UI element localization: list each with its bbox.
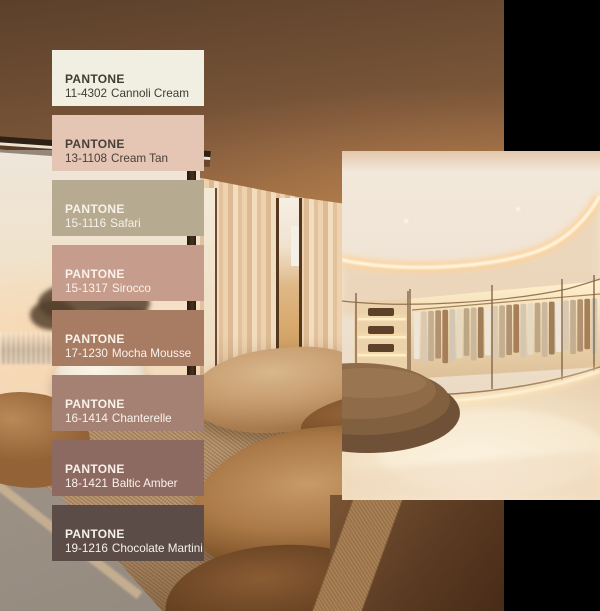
swatch-code: 19-1216 xyxy=(65,542,108,555)
pantone-swatch: PANTONE 17-1230Mocha Mousse xyxy=(52,310,204,366)
pantone-brand-label: PANTONE xyxy=(65,398,196,410)
swatch-code: 15-1317 xyxy=(65,282,108,295)
swatch-name: Cannoli Cream xyxy=(111,87,189,100)
pantone-swatch: PANTONE 19-1216Chocolate Martini xyxy=(52,505,204,561)
window-slice xyxy=(204,188,217,386)
swatch-name: Chocolate Martini xyxy=(112,542,203,555)
pantone-swatch: PANTONE 15-1116Safari xyxy=(52,180,204,236)
pantone-moodboard: PANTONE 11-4302Cannoli Cream PANTONE 13-… xyxy=(0,0,600,611)
swatch-code-name: 19-1216Chocolate Martini xyxy=(65,543,196,555)
pantone-brand-label: PANTONE xyxy=(65,268,196,280)
ceiling-spotlight xyxy=(404,219,408,223)
window-view-building xyxy=(291,226,299,266)
pantone-swatch: PANTONE 18-1421Baltic Amber xyxy=(52,440,204,496)
swatch-code-name: 15-1317Sirocco xyxy=(65,283,196,295)
closet-inset-photo xyxy=(342,151,600,500)
pantone-brand-label: PANTONE xyxy=(65,333,196,345)
swatch-name: Cream Tan xyxy=(111,152,168,165)
pantone-brand-label: PANTONE xyxy=(65,463,196,475)
swatch-code: 18-1421 xyxy=(65,477,108,490)
pantone-swatch: PANTONE 11-4302Cannoli Cream xyxy=(52,50,204,106)
pantone-swatch: PANTONE 13-1108Cream Tan xyxy=(52,115,204,171)
swatch-code: 16-1414 xyxy=(65,412,108,425)
swatch-code-name: 18-1421Baltic Amber xyxy=(65,478,196,490)
pantone-brand-label: PANTONE xyxy=(65,138,196,150)
swatch-code-name: 17-1230Mocha Mousse xyxy=(65,348,196,360)
swatch-code: 15-1116 xyxy=(65,217,106,230)
swatch-name: Mocha Mousse xyxy=(112,347,191,360)
ceiling-spotlight xyxy=(516,207,520,211)
swatch-name: Safari xyxy=(110,217,141,230)
swatch-code: 11-4302 xyxy=(65,87,107,100)
swatch-code-name: 13-1108Cream Tan xyxy=(65,153,196,165)
pantone-brand-label: PANTONE xyxy=(65,528,196,540)
swatch-name: Baltic Amber xyxy=(112,477,178,490)
swatch-code-name: 16-1414Chanterelle xyxy=(65,413,196,425)
pantone-swatch: PANTONE 16-1414Chanterelle xyxy=(52,375,204,431)
pantone-brand-label: PANTONE xyxy=(65,203,196,215)
swatch-name: Sirocco xyxy=(112,282,151,295)
pantone-swatch: PANTONE 15-1317Sirocco xyxy=(52,245,204,301)
swatch-code: 13-1108 xyxy=(65,152,107,165)
pantone-swatch-list: PANTONE 11-4302Cannoli Cream PANTONE 13-… xyxy=(52,50,204,570)
pantone-brand-label: PANTONE xyxy=(65,73,196,85)
swatch-code-name: 15-1116Safari xyxy=(65,218,196,230)
swatch-code-name: 11-4302Cannoli Cream xyxy=(65,88,196,100)
swatch-code: 17-1230 xyxy=(65,347,108,360)
swatch-name: Chanterelle xyxy=(112,412,172,425)
tall-window xyxy=(276,198,302,358)
